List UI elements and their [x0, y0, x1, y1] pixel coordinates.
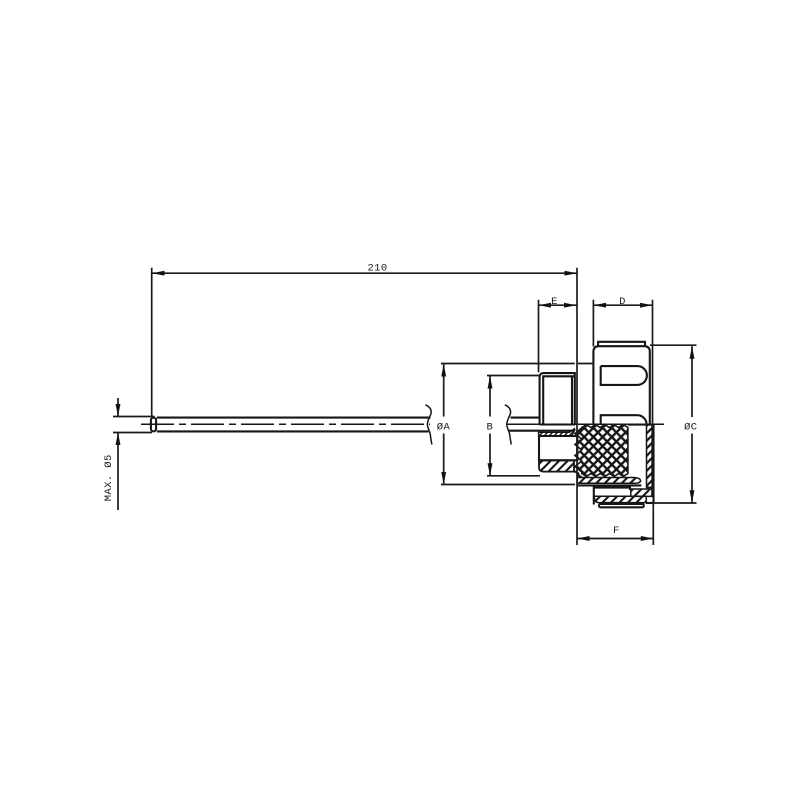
svg-text:210: 210 — [367, 262, 387, 274]
svg-text:E: E — [551, 296, 558, 308]
svg-text:B: B — [486, 422, 493, 434]
svg-text:D: D — [619, 296, 626, 308]
svg-text:F: F — [613, 525, 620, 537]
svg-text:ØA: ØA — [437, 422, 451, 434]
svg-text:MAX. Ø5: MAX. Ø5 — [103, 454, 115, 501]
svg-text:ØC: ØC — [684, 421, 697, 433]
